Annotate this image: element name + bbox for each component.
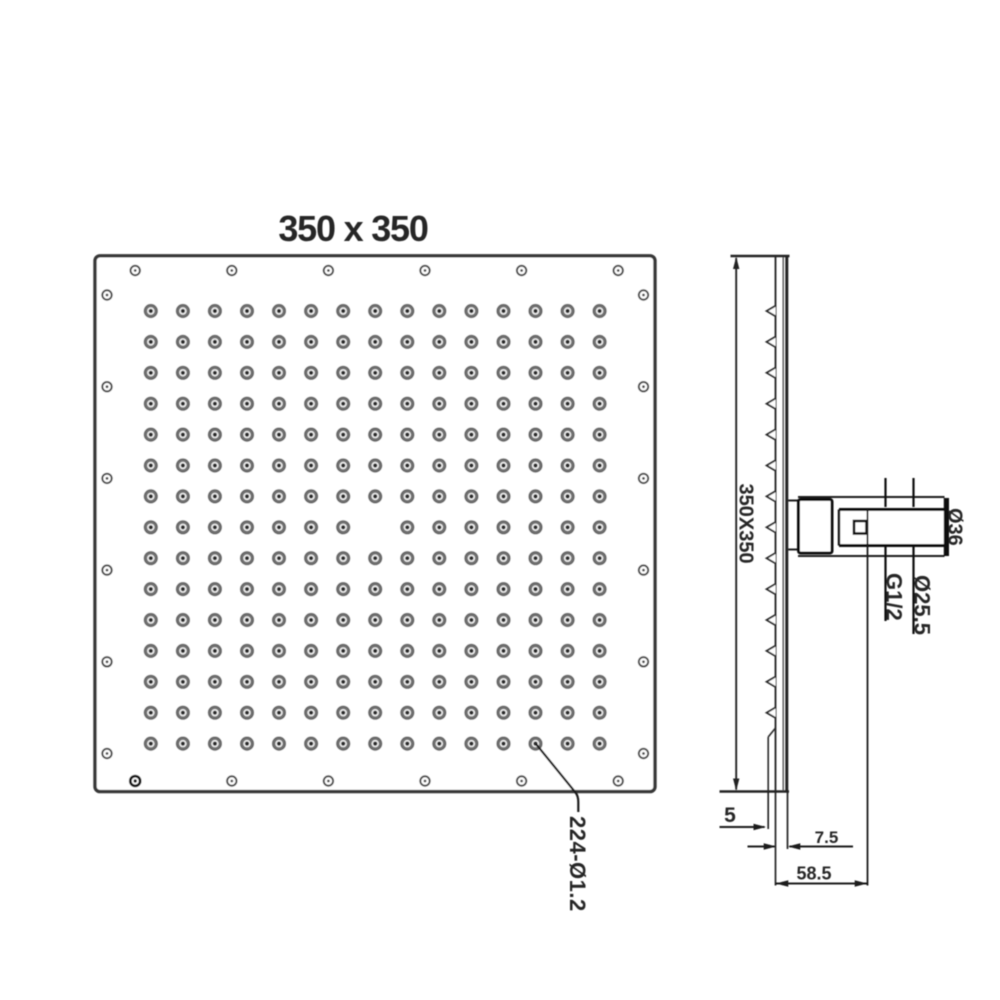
- svg-text:350 x 350: 350 x 350: [278, 208, 428, 249]
- svg-text:5: 5: [724, 804, 736, 827]
- svg-text:224-Ø1.2: 224-Ø1.2: [565, 816, 590, 912]
- svg-text:7.5: 7.5: [815, 828, 839, 847]
- svg-text:Ø36: Ø36: [944, 508, 966, 546]
- svg-text:58.5: 58.5: [796, 864, 831, 884]
- svg-text:Ø25.5: Ø25.5: [910, 575, 935, 635]
- svg-text:350X350: 350X350: [735, 484, 757, 564]
- svg-text:G1/2: G1/2: [882, 573, 907, 621]
